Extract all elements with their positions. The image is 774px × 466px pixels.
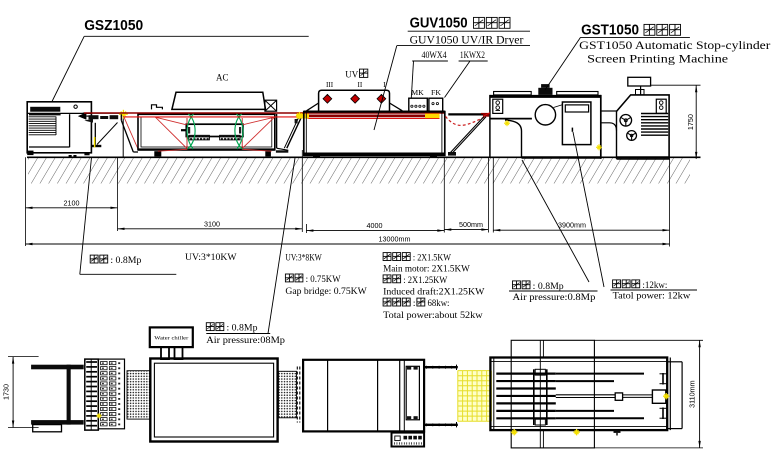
svg-text:FK: FK (431, 88, 441, 97)
svg-text:GST1050 Automatic Stop-cylinde: GST1050 Automatic Stop-cylinder (579, 40, 770, 52)
svg-text:UV: UV (345, 69, 358, 79)
svg-text:2100: 2100 (64, 198, 80, 207)
svg-text:: 2X1.5KW: : 2X1.5KW (413, 254, 451, 264)
svg-text:Air pressure:08Mp: Air pressure:08Mp (206, 336, 285, 346)
svg-text:: 2X1.25KW: : 2X1.25KW (403, 276, 447, 286)
svg-text:GSZ1050: GSZ1050 (84, 18, 143, 34)
svg-text:III: III (326, 81, 334, 89)
svg-text:4000: 4000 (367, 221, 383, 230)
svg-text:Induced draft:2X1.25KW: Induced draft:2X1.25KW (383, 286, 485, 297)
svg-text:1KWX2: 1KWX2 (460, 51, 485, 61)
svg-text:: 0.8Mp: : 0.8Mp (110, 256, 141, 266)
svg-text:: 0.8Mp: : 0.8Mp (227, 324, 258, 334)
svg-text:II: II (358, 81, 363, 89)
svg-text:Gap bridge: 0.75KW: Gap bridge: 0.75KW (285, 287, 367, 297)
svg-text:1750: 1750 (686, 114, 695, 130)
svg-text:Screen Printing Machine: Screen Printing Machine (587, 54, 728, 66)
svg-text:: 0.75KW: : 0.75KW (306, 275, 341, 285)
svg-text:Main motor: 2X1.5KW: Main motor: 2X1.5KW (383, 264, 470, 274)
svg-text:AC: AC (216, 73, 229, 83)
svg-text:13000mm: 13000mm (379, 235, 411, 244)
svg-text:Total power:about 52kw: Total power:about 52kw (383, 311, 483, 321)
svg-text:68kw:: 68kw: (428, 299, 450, 309)
svg-text:: 0.8Mp: : 0.8Mp (533, 282, 564, 292)
svg-text:GST1050: GST1050 (581, 23, 639, 39)
svg-text:3100: 3100 (204, 219, 220, 228)
svg-text:UV:3*8KW: UV:3*8KW (285, 252, 322, 263)
svg-text::12kw:: :12kw: (642, 281, 667, 291)
svg-text:Air pressure:0.8Mp: Air pressure:0.8Mp (513, 293, 596, 303)
svg-text:1730: 1730 (2, 384, 11, 400)
svg-text:Water chiller: Water chiller (154, 336, 188, 342)
svg-text:40WX4: 40WX4 (422, 51, 447, 61)
svg-text:GUV1050 UV/IR Dryer: GUV1050 UV/IR Dryer (410, 34, 524, 46)
svg-text:500mm: 500mm (459, 220, 483, 229)
svg-text:GUV1050: GUV1050 (410, 16, 468, 32)
svg-text:Tatol power: 12kw: Tatol power: 12kw (613, 291, 691, 301)
svg-text:3900mm: 3900mm (558, 221, 586, 230)
svg-text:MK: MK (411, 88, 424, 97)
svg-text:UV:3*10KW: UV:3*10KW (185, 252, 237, 263)
svg-text::: : (413, 299, 416, 309)
svg-text:3110mm: 3110mm (688, 380, 697, 407)
